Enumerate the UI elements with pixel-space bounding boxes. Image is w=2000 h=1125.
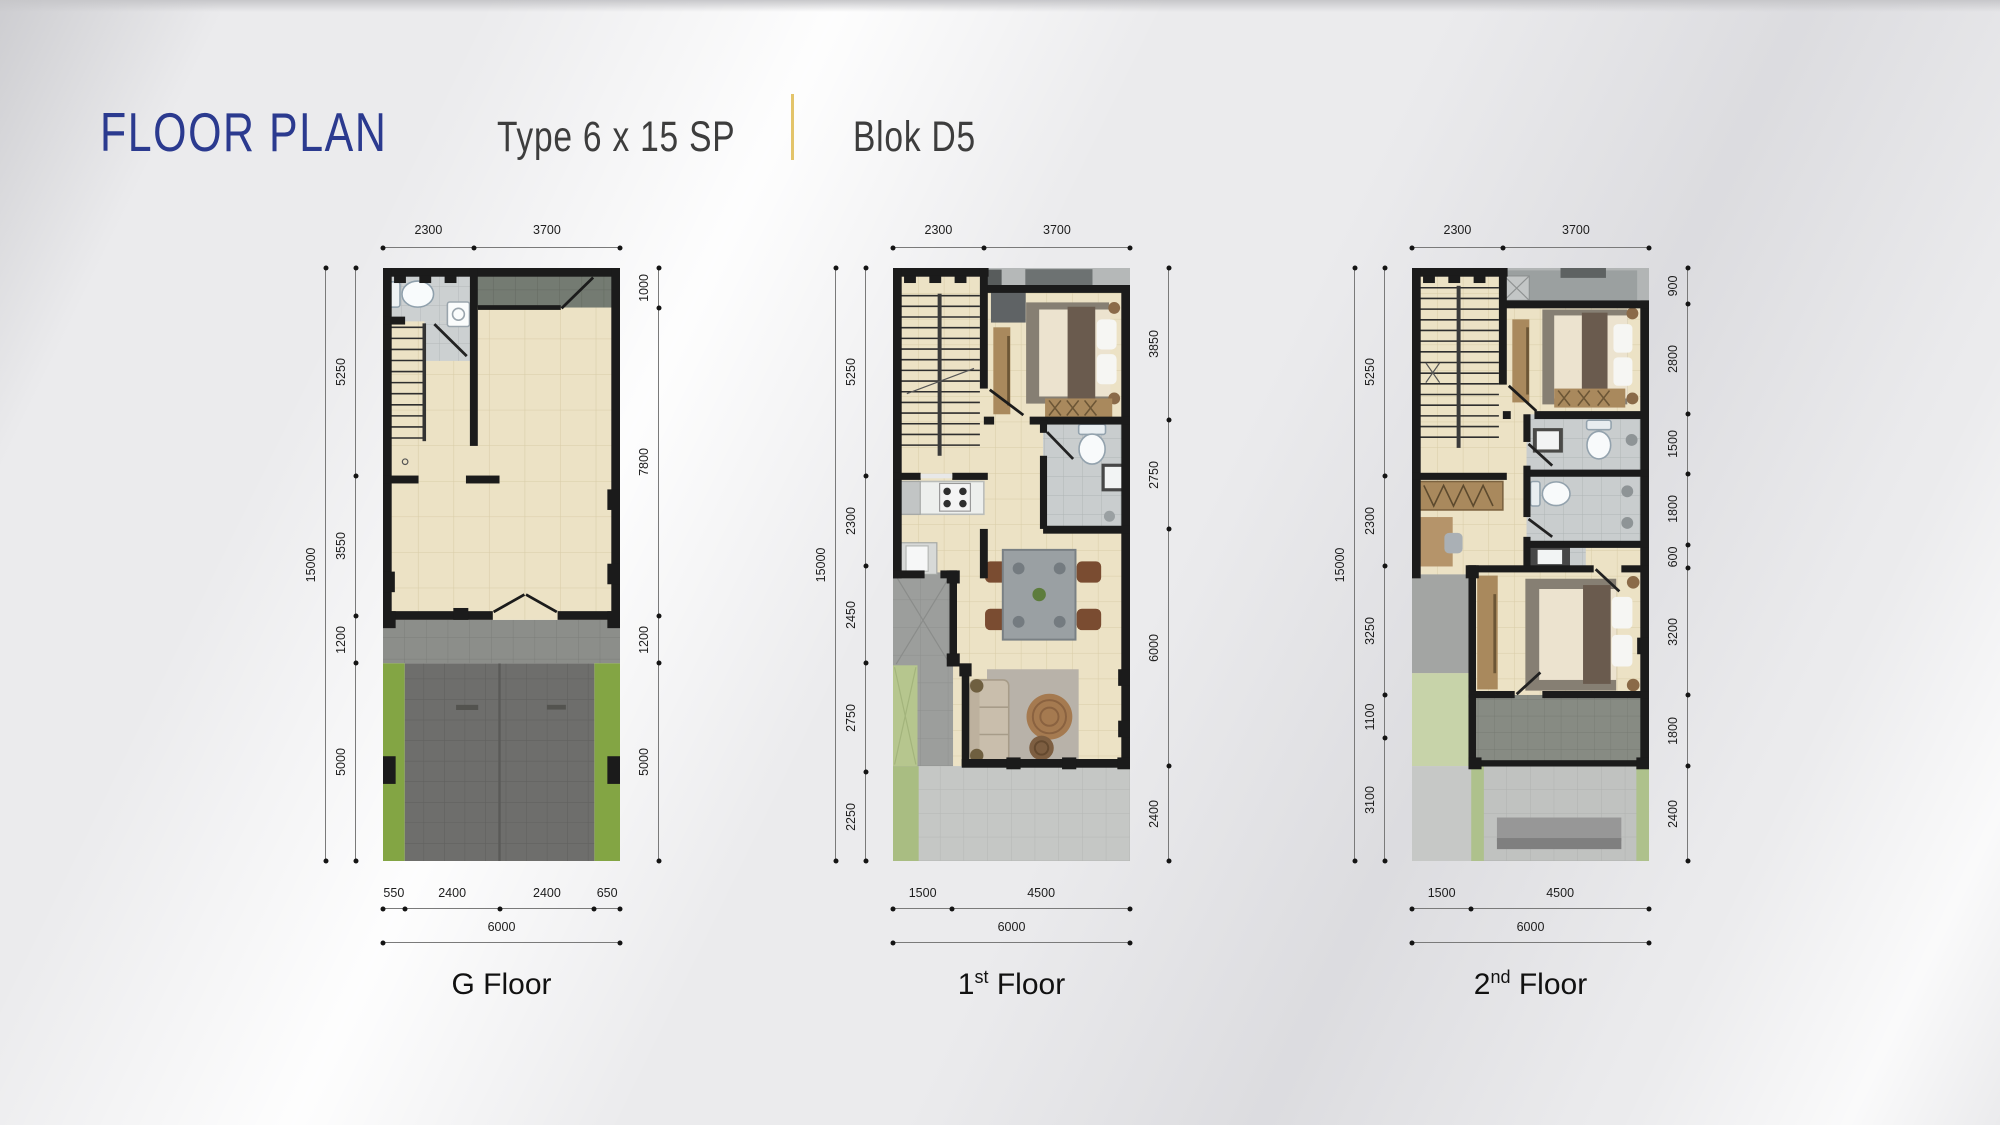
vanity-sink <box>1531 547 1571 567</box>
dimension-tick <box>618 906 623 911</box>
dimension-label: 3250 <box>1363 617 1377 645</box>
dimension-label: 5000 <box>334 748 348 776</box>
dimension-line <box>1168 268 1169 861</box>
dimension-tick <box>381 906 386 911</box>
dimension-tick <box>1382 266 1387 271</box>
dimension-label: 1500 <box>1666 430 1680 458</box>
dimension-label: 3700 <box>533 223 561 237</box>
dimension-tick <box>656 859 661 864</box>
dimension-line <box>893 908 1130 909</box>
dimension-tick <box>1500 245 1505 250</box>
dimension-line <box>383 942 620 943</box>
dimension-line <box>658 268 659 861</box>
dimension-label: 1000 <box>637 274 651 302</box>
dimension-tick <box>1128 940 1133 945</box>
dimension-tick <box>1685 471 1690 476</box>
carport-marker <box>547 705 566 710</box>
sink-icon <box>447 302 469 327</box>
dimension-label: 2400 <box>438 886 466 900</box>
plan-g-floor: 2300370055024002400650600052503550120050… <box>383 268 620 861</box>
dimension-tick <box>353 613 358 618</box>
dimension-line <box>1687 268 1688 861</box>
dimension-tick <box>656 661 661 666</box>
dimension-tick <box>353 859 358 864</box>
dimension-line <box>865 268 866 861</box>
dimension-tick <box>1685 566 1690 571</box>
dimension-line <box>1384 268 1385 861</box>
dimension-tick <box>353 266 358 271</box>
shower-drain <box>1626 434 1638 446</box>
dimension-tick <box>592 906 597 911</box>
bench <box>1554 389 1625 408</box>
dimension-label: 1500 <box>1428 886 1456 900</box>
dimension-line <box>383 247 620 248</box>
floor-label-text: G <box>451 968 474 1001</box>
floor-label: 1st Floor <box>833 967 1190 1002</box>
dimension-tick <box>1647 906 1652 911</box>
bench <box>1045 398 1112 417</box>
dimension-tick <box>1685 764 1690 769</box>
dimension-tick <box>863 564 868 569</box>
plan-second-floor: 2300370015004500600052502300325011003100… <box>1412 268 1649 861</box>
slide: FLOOR PLAN Type 6 x 15 SP Blok D5 <box>0 0 2000 1125</box>
dimension-tick <box>618 245 623 250</box>
dimension-label: 5250 <box>1363 358 1377 386</box>
dimension-tick <box>891 940 896 945</box>
dimension-line <box>383 908 620 909</box>
dimension-line <box>355 268 356 861</box>
dimension-label: 900 <box>1666 275 1680 296</box>
stove-icon <box>940 483 971 511</box>
dimension-label: 6000 <box>488 920 516 934</box>
dimension-label: 2300 <box>415 223 443 237</box>
dimension-label: 550 <box>383 886 404 900</box>
dimension-label: 1100 <box>1363 703 1377 730</box>
dimension-line <box>1412 942 1649 943</box>
dimension-tick <box>863 661 868 666</box>
dimension-label: 6000 <box>1517 920 1545 934</box>
dimension-label: 5250 <box>844 358 858 386</box>
dimension-line <box>1354 268 1355 861</box>
dimension-line <box>835 268 836 861</box>
dimension-tick <box>1382 473 1387 478</box>
dimension-label: 3200 <box>1666 618 1680 646</box>
dimension-tick <box>1352 859 1357 864</box>
left-roof-strip <box>1412 574 1472 861</box>
dimension-tick <box>833 859 838 864</box>
dimension-line <box>325 268 326 861</box>
roof-strip-dark <box>1025 269 1092 285</box>
dimension-label: 2400 <box>1147 800 1161 828</box>
dimension-tick <box>1128 245 1133 250</box>
dimension-tick <box>656 305 661 310</box>
dimension-tick <box>1685 266 1690 271</box>
toilet-icon <box>1587 420 1611 459</box>
shower-drain <box>1621 485 1633 497</box>
dimension-label: 5000 <box>637 748 651 776</box>
floor-label-text: 1 <box>958 968 975 1001</box>
kitchen-counter <box>898 481 984 514</box>
dimension-tick <box>1352 266 1357 271</box>
dimension-tick <box>1469 906 1474 911</box>
dimension-label: 15000 <box>304 547 318 582</box>
dimension-label: 2400 <box>1666 800 1680 828</box>
dimension-tick <box>1685 301 1690 306</box>
floor-label-sup: st <box>974 967 988 987</box>
closet <box>991 290 1026 322</box>
dimension-tick <box>1685 692 1690 697</box>
dimension-tick <box>1685 859 1690 864</box>
toilet-icon <box>1531 481 1571 506</box>
dimension-tick <box>833 266 838 271</box>
grass-strip <box>893 766 919 861</box>
dimension-label: 7800 <box>637 448 651 476</box>
shower-drain <box>1621 517 1633 529</box>
dimension-label: 2750 <box>844 704 858 732</box>
toilet-icon <box>389 281 434 307</box>
header: FLOOR PLAN Type 6 x 15 SP Blok D5 <box>0 0 2000 170</box>
bathroom2-floor <box>1527 474 1649 545</box>
dimension-tick <box>381 245 386 250</box>
dimension-label: 15000 <box>1333 547 1347 582</box>
closet-hangers <box>1417 481 1503 509</box>
dimension-tick <box>353 473 358 478</box>
dimension-tick <box>891 906 896 911</box>
dimension-label: 3850 <box>1147 330 1161 358</box>
dimension-label: 2800 <box>1666 345 1680 373</box>
dimension-tick <box>1382 564 1387 569</box>
type-subtitle: Type 6 x 15 SP <box>497 113 735 162</box>
plan-first-floor: 2300370015004500600052502300245027502250… <box>893 268 1130 861</box>
dimension-tick <box>497 906 502 911</box>
second-floor-drawing <box>1412 268 1649 861</box>
dimension-label: 2300 <box>1444 223 1472 237</box>
back-terrace <box>1471 766 1649 861</box>
dimension-tick <box>891 245 896 250</box>
washer-nook <box>898 543 937 575</box>
dimension-tick <box>1166 418 1171 423</box>
dimension-label: 2300 <box>1363 507 1377 535</box>
dimension-tick <box>381 940 386 945</box>
dimension-label: 4500 <box>1546 886 1574 900</box>
dimension-tick <box>863 770 868 775</box>
dimension-tick <box>353 661 358 666</box>
dimension-label: 2300 <box>925 223 953 237</box>
dimension-label: 3550 <box>334 532 348 560</box>
dimension-label: 6000 <box>998 920 1026 934</box>
dimension-tick <box>1166 859 1171 864</box>
dimension-label: 2750 <box>1147 461 1161 489</box>
centerpiece-plant <box>1032 588 1045 601</box>
side-deck <box>893 572 953 766</box>
dimension-line <box>893 247 1130 248</box>
dimension-tick <box>323 266 328 271</box>
front-porch <box>383 620 620 663</box>
dimension-label: 650 <box>597 886 618 900</box>
dimension-tick <box>863 859 868 864</box>
dimension-tick <box>656 613 661 618</box>
floor-label: G Floor <box>323 967 680 1002</box>
header-divider <box>791 94 794 160</box>
floor-label-text: Floor <box>475 968 552 1001</box>
dimension-tick <box>1647 940 1652 945</box>
dimension-tick <box>1166 764 1171 769</box>
floor-label-sup: nd <box>1490 967 1510 987</box>
dimension-tick <box>323 859 328 864</box>
floor-label-text: Floor <box>989 968 1066 1001</box>
dimension-label: 15000 <box>814 547 828 582</box>
dimension-label: 6000 <box>1147 634 1161 662</box>
carport-marker <box>456 705 478 710</box>
dimension-tick <box>1128 906 1133 911</box>
dimension-tick <box>863 266 868 271</box>
dimension-label: 1200 <box>637 626 651 654</box>
bed <box>1026 302 1120 404</box>
dimension-tick <box>1410 245 1415 250</box>
dimension-label: 600 <box>1666 546 1680 567</box>
dimension-tick <box>618 940 623 945</box>
dimension-tick <box>950 906 955 911</box>
dimension-label: 3100 <box>1363 786 1377 814</box>
dimension-label: 3700 <box>1043 223 1071 237</box>
dimension-label: 1200 <box>334 626 348 654</box>
dimension-tick <box>1382 859 1387 864</box>
dimension-label: 1800 <box>1666 495 1680 523</box>
block-label: Blok D5 <box>853 113 976 162</box>
floor-label-text: 2 <box>1474 968 1491 1001</box>
dimension-label: 2400 <box>533 886 561 900</box>
dimension-label: 2450 <box>844 601 858 629</box>
dimension-tick <box>1410 940 1415 945</box>
dimension-tick <box>1685 542 1690 547</box>
floor-label-text: Floor <box>1511 968 1588 1001</box>
sofa <box>970 679 1009 762</box>
dimension-tick <box>1647 245 1652 250</box>
dimension-line <box>1412 247 1649 248</box>
dimension-tick <box>1410 906 1415 911</box>
dimension-tick <box>863 473 868 478</box>
vanity-sink <box>1533 428 1563 453</box>
dimension-tick <box>1166 266 1171 271</box>
dimension-tick <box>981 245 986 250</box>
dimension-tick <box>1685 412 1690 417</box>
toilet-icon <box>1079 424 1106 464</box>
dimension-line <box>1412 908 1649 909</box>
dimension-label: 4500 <box>1027 886 1055 900</box>
kitchen-window <box>921 474 953 479</box>
dimension-line <box>893 942 1130 943</box>
dimension-label: 3700 <box>1562 223 1590 237</box>
dimension-tick <box>1382 736 1387 741</box>
dimension-label: 2250 <box>844 803 858 831</box>
back-patio <box>893 766 1130 861</box>
balcony <box>1471 695 1649 766</box>
dimension-label: 1500 <box>909 886 937 900</box>
dimension-label: 5250 <box>334 358 348 386</box>
wardrobe <box>1477 576 1498 690</box>
shower-drain <box>1104 511 1115 522</box>
floor-label: 2nd Floor <box>1352 967 1709 1002</box>
page-title: FLOOR PLAN <box>100 100 387 164</box>
roof-strip <box>1503 268 1649 303</box>
dimension-tick <box>471 245 476 250</box>
dimension-tick <box>656 266 661 271</box>
dimension-tick <box>1382 692 1387 697</box>
g-floor-drawing <box>383 268 620 861</box>
dimension-tick <box>1166 526 1171 531</box>
dimension-tick <box>402 906 407 911</box>
dimension-label: 2300 <box>844 507 858 535</box>
dimension-label: 1800 <box>1666 717 1680 745</box>
wardrobe <box>993 327 1010 414</box>
first-floor-drawing <box>893 268 1130 861</box>
